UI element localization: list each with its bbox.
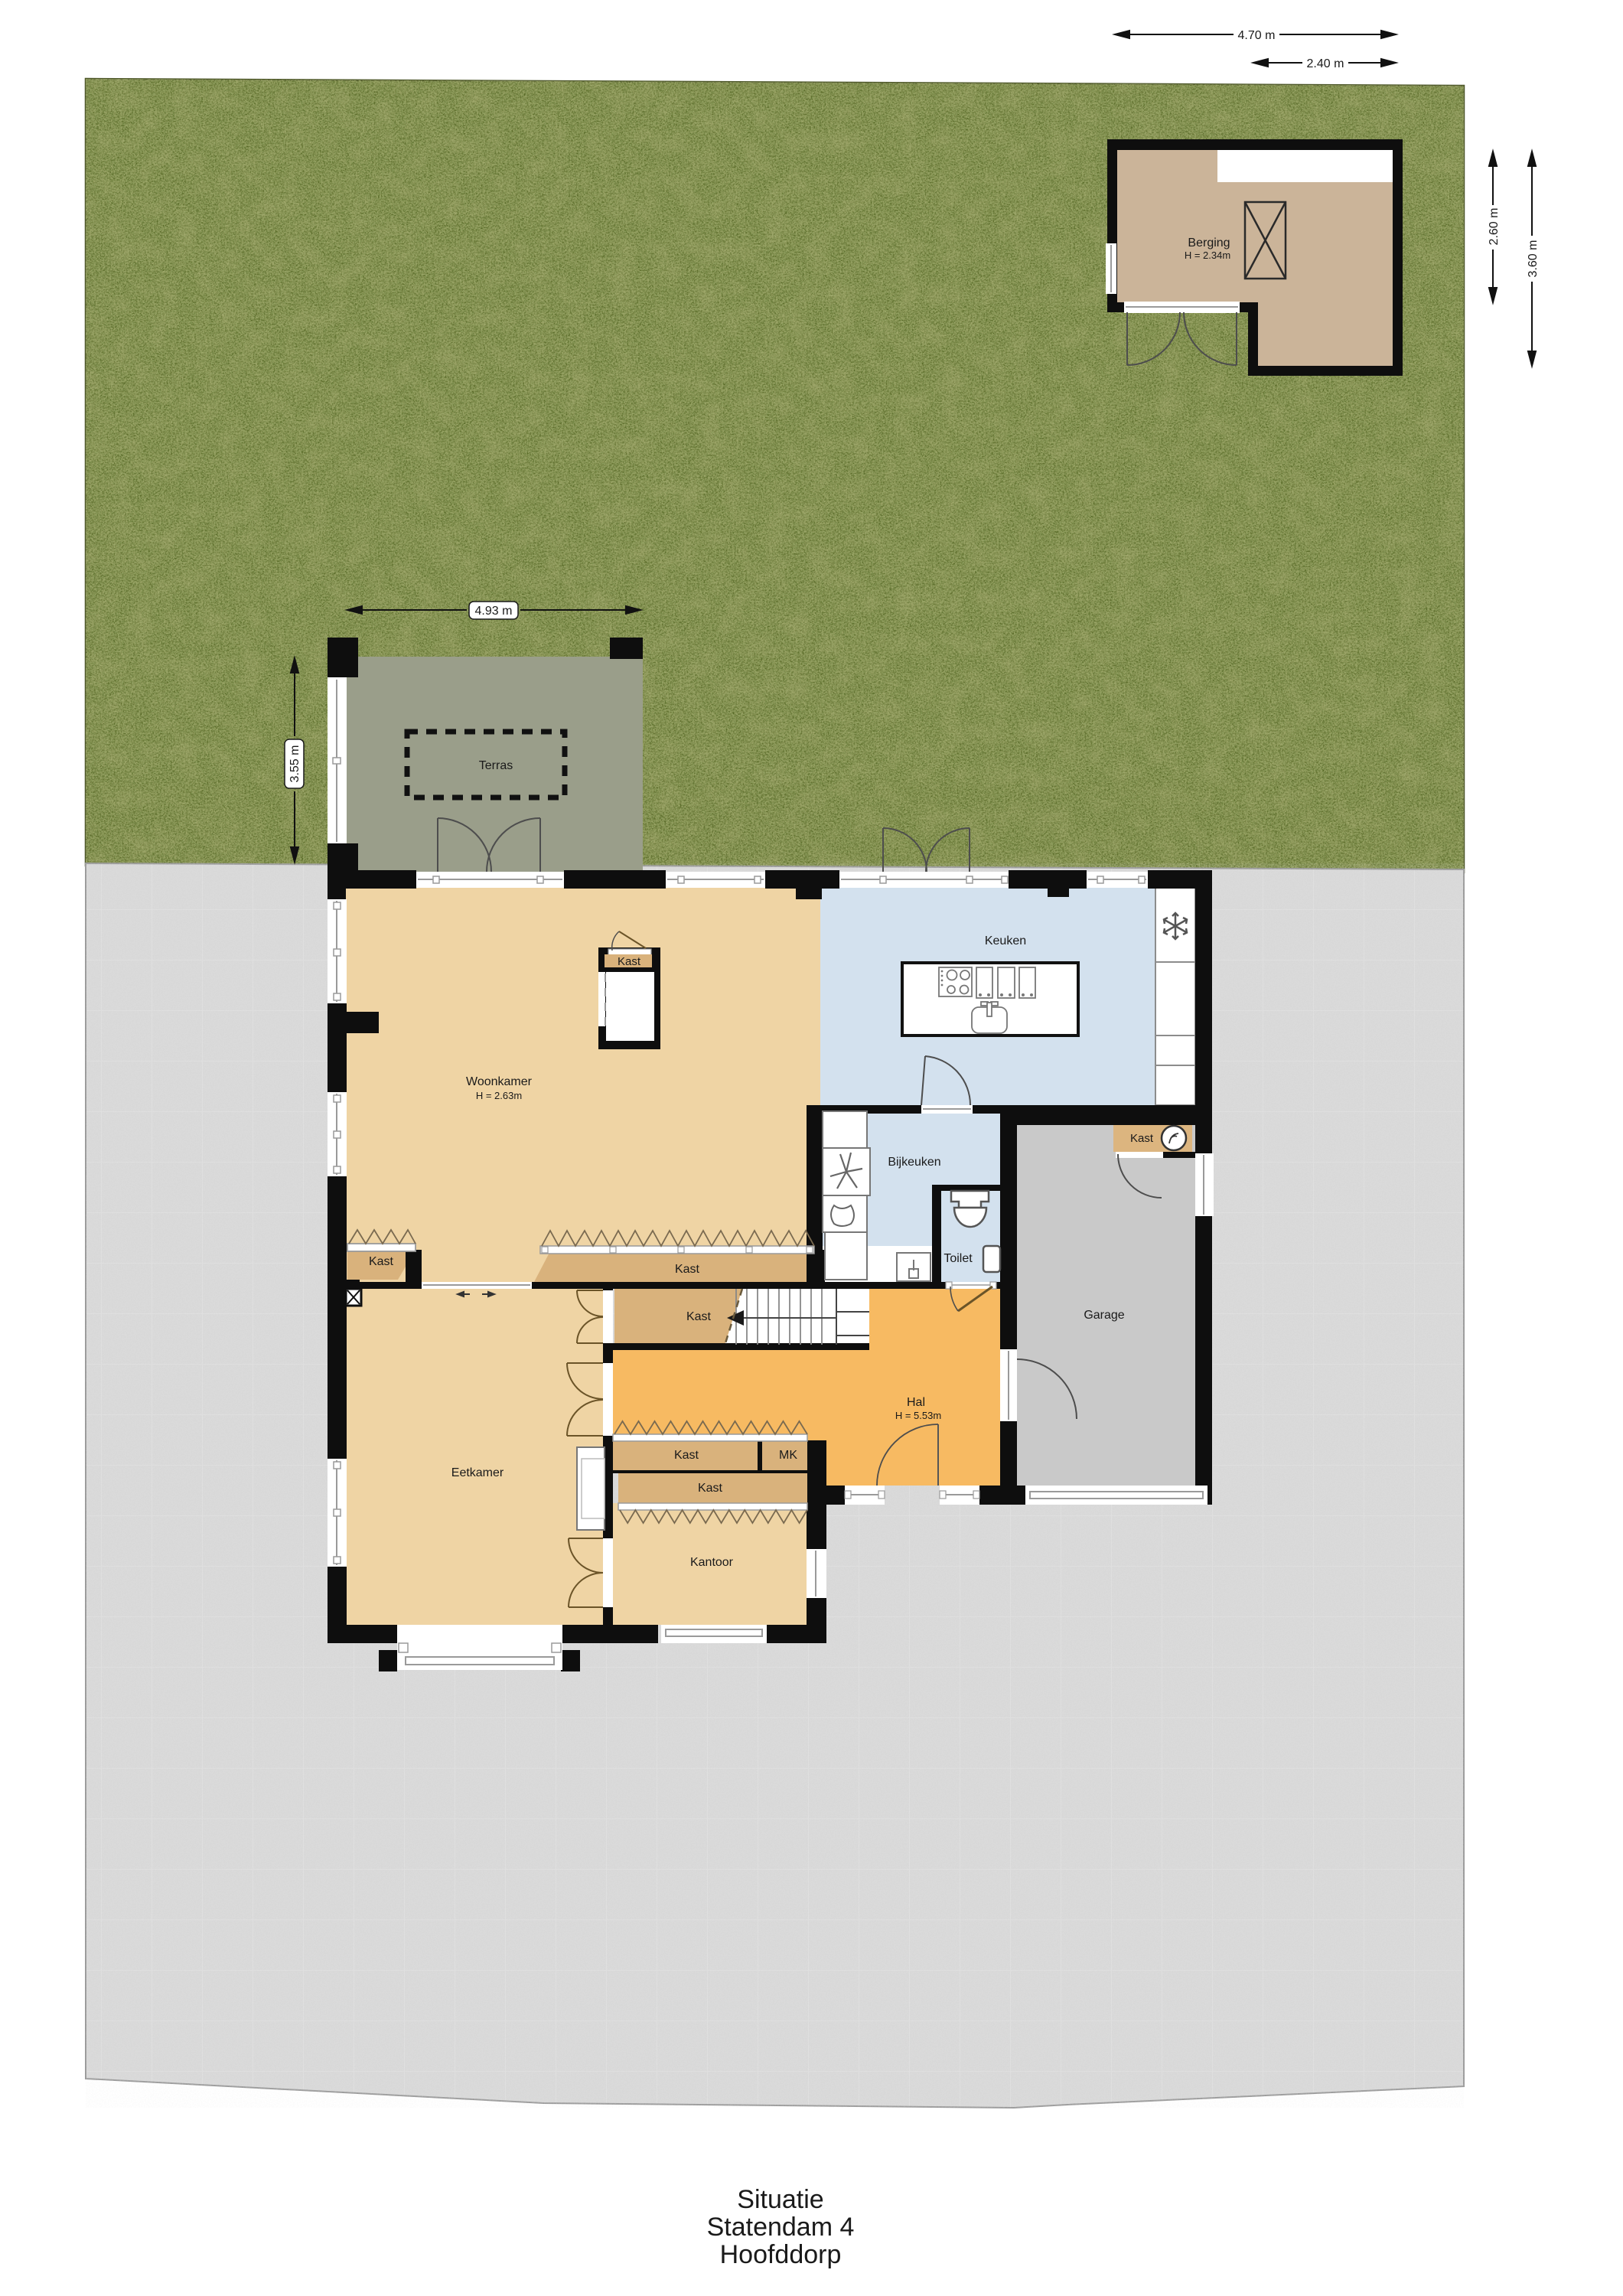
svg-text:Bijkeuken: Bijkeuken	[888, 1156, 940, 1169]
svg-text:4.93 m: 4.93 m	[475, 605, 513, 618]
svg-text:Kast: Kast	[675, 1263, 700, 1276]
svg-text:H = 2.34m: H = 2.34m	[1185, 249, 1230, 261]
svg-text:Woonkamer: Woonkamer	[466, 1075, 533, 1088]
svg-text:Kast: Kast	[369, 1255, 394, 1268]
svg-text:Keuken: Keuken	[985, 934, 1026, 947]
svg-text:4.70 m: 4.70 m	[1238, 29, 1276, 42]
svg-text:Toilet: Toilet	[943, 1252, 973, 1265]
svg-text:Kast: Kast	[686, 1310, 712, 1323]
svg-text:Statendam 4: Statendam 4	[707, 2213, 855, 2242]
svg-text:Eetkamer: Eetkamer	[451, 1466, 504, 1479]
svg-text:Hal: Hal	[907, 1396, 925, 1409]
svg-text:Kast: Kast	[674, 1449, 699, 1462]
svg-text:Situatie: Situatie	[737, 2185, 823, 2214]
svg-text:Hoofddorp: Hoofddorp	[720, 2240, 842, 2269]
svg-text:MK: MK	[779, 1449, 797, 1462]
svg-text:3.55 m: 3.55 m	[288, 745, 301, 783]
svg-text:Kantoor: Kantoor	[690, 1556, 734, 1569]
svg-text:Kast: Kast	[698, 1482, 723, 1495]
svg-text:2.40 m: 2.40 m	[1307, 57, 1344, 70]
svg-text:Terras: Terras	[479, 759, 513, 772]
svg-text:Kast: Kast	[1130, 1132, 1154, 1145]
svg-text:Kast: Kast	[618, 955, 641, 968]
svg-text:2.60 m: 2.60 m	[1488, 208, 1501, 246]
svg-text:H = 2.63m: H = 2.63m	[476, 1090, 522, 1101]
svg-text:Berging: Berging	[1188, 236, 1230, 249]
svg-text:Garage: Garage	[1084, 1309, 1124, 1322]
svg-text:H = 5.53m: H = 5.53m	[895, 1410, 941, 1421]
svg-text:3.60 m: 3.60 m	[1527, 240, 1540, 278]
